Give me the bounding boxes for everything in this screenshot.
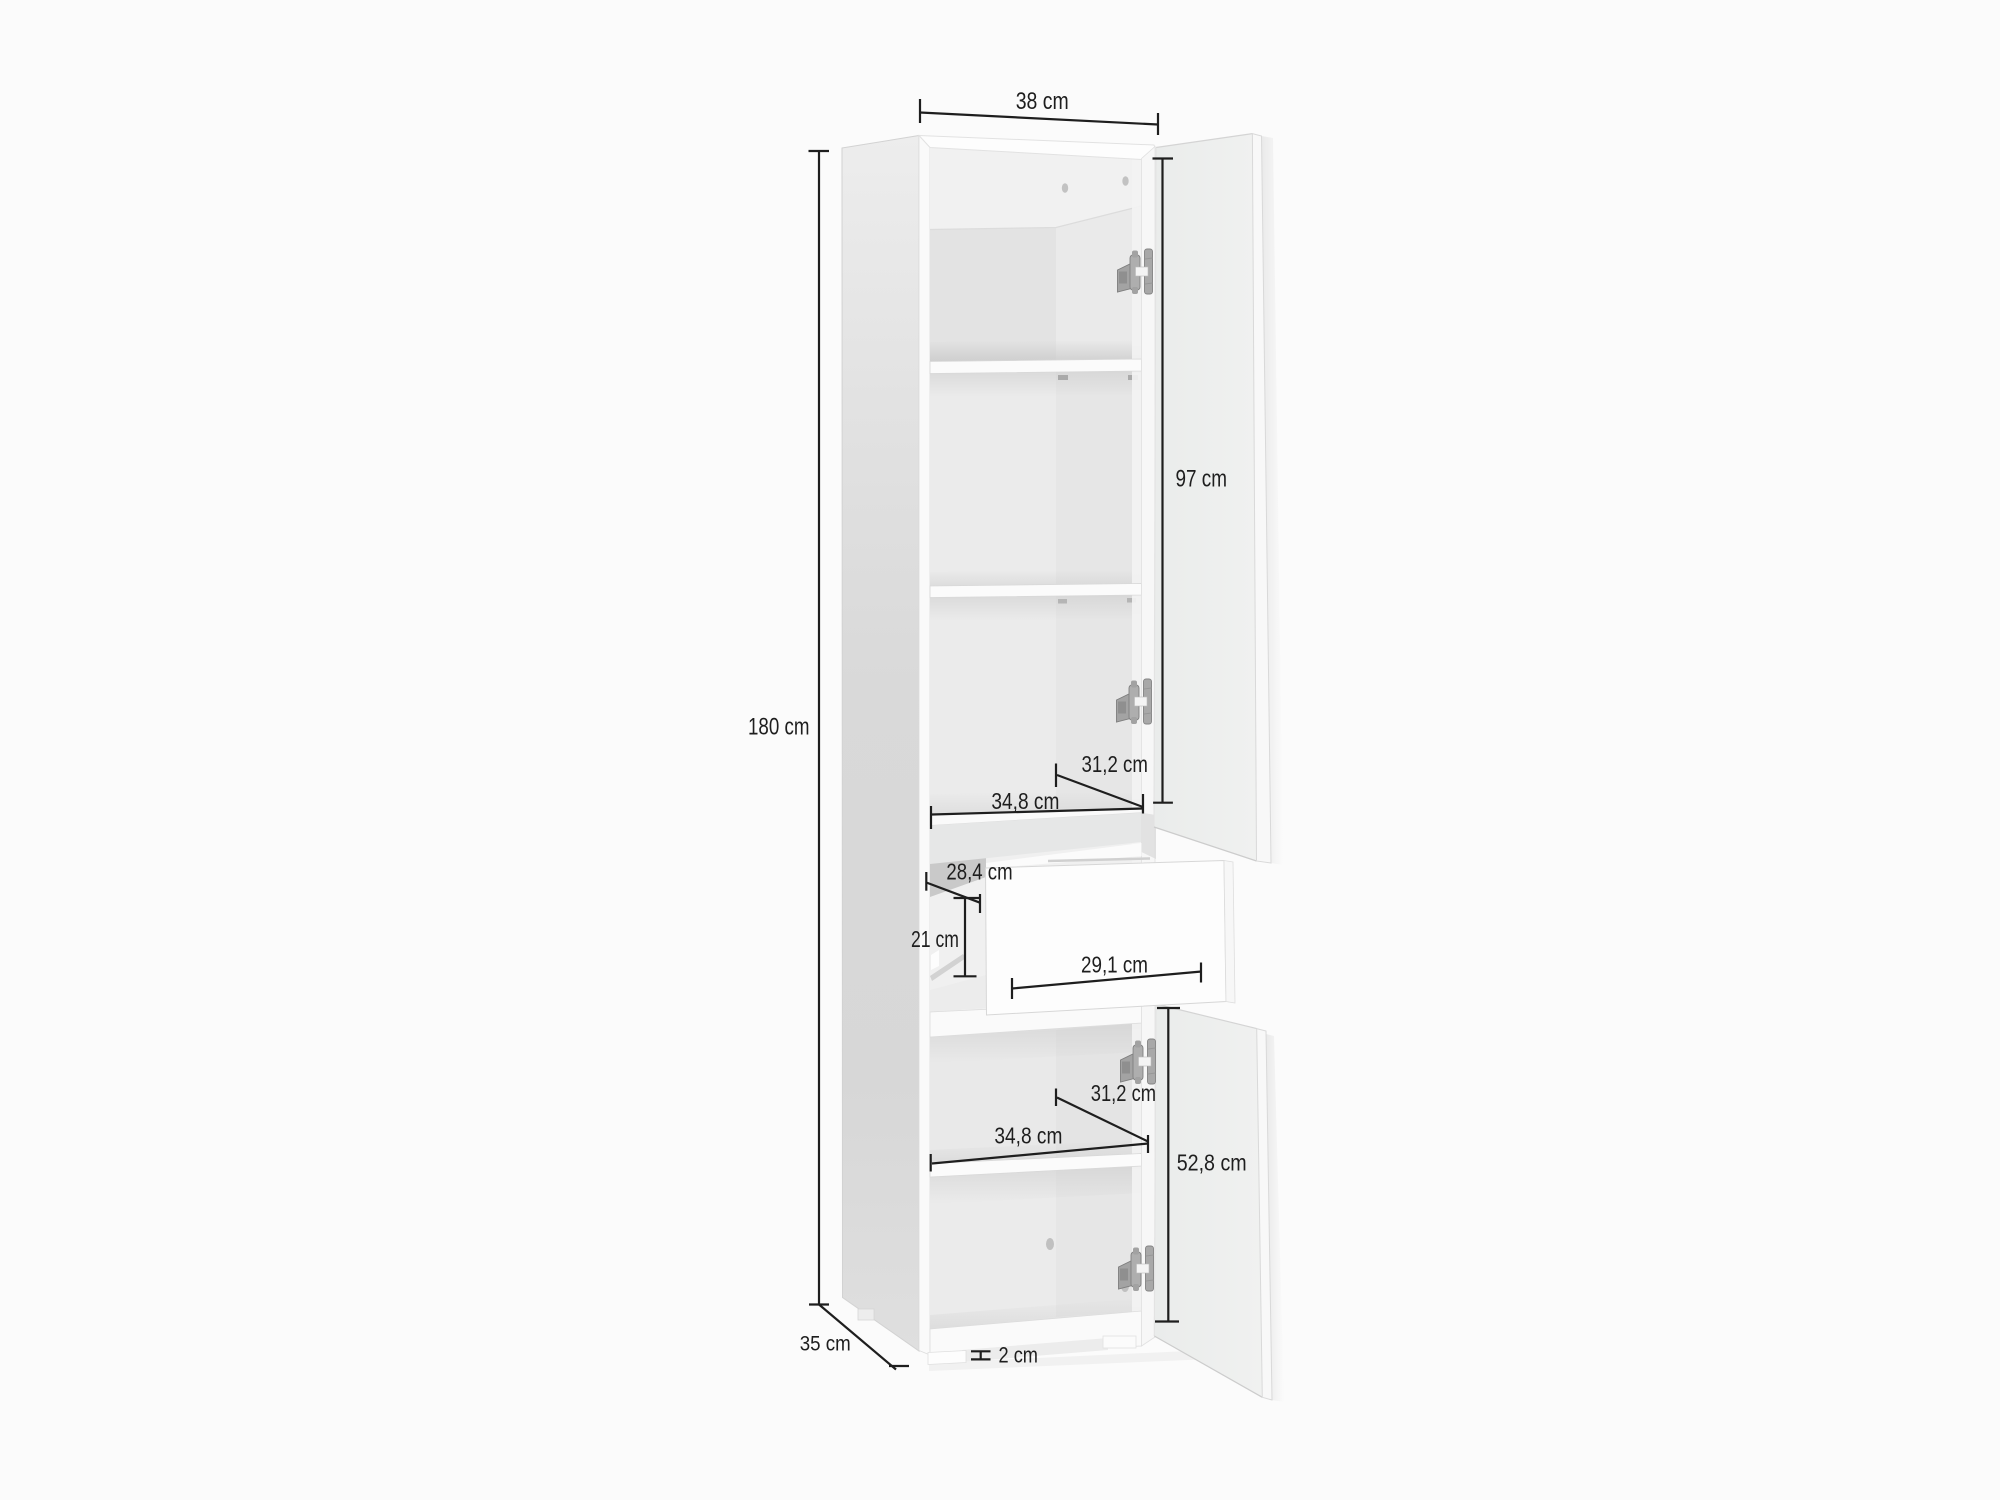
svg-text:38 cm: 38 cm xyxy=(1016,88,1069,115)
svg-text:21 cm: 21 cm xyxy=(911,926,959,952)
svg-text:34,8 cm: 34,8 cm xyxy=(994,1123,1062,1149)
svg-text:34,8 cm: 34,8 cm xyxy=(991,788,1059,814)
svg-text:31,2 cm: 31,2 cm xyxy=(1082,751,1148,777)
svg-text:180 cm: 180 cm xyxy=(748,714,810,741)
svg-text:35 cm: 35 cm xyxy=(800,1332,851,1356)
svg-text:31,2 cm: 31,2 cm xyxy=(1091,1080,1156,1106)
svg-text:97 cm: 97 cm xyxy=(1176,466,1228,493)
svg-text:2 cm: 2 cm xyxy=(999,1342,1039,1367)
svg-text:52,8 cm: 52,8 cm xyxy=(1177,1150,1247,1176)
svg-text:29,1 cm: 29,1 cm xyxy=(1081,952,1148,978)
svg-text:28,4 cm: 28,4 cm xyxy=(946,859,1012,885)
